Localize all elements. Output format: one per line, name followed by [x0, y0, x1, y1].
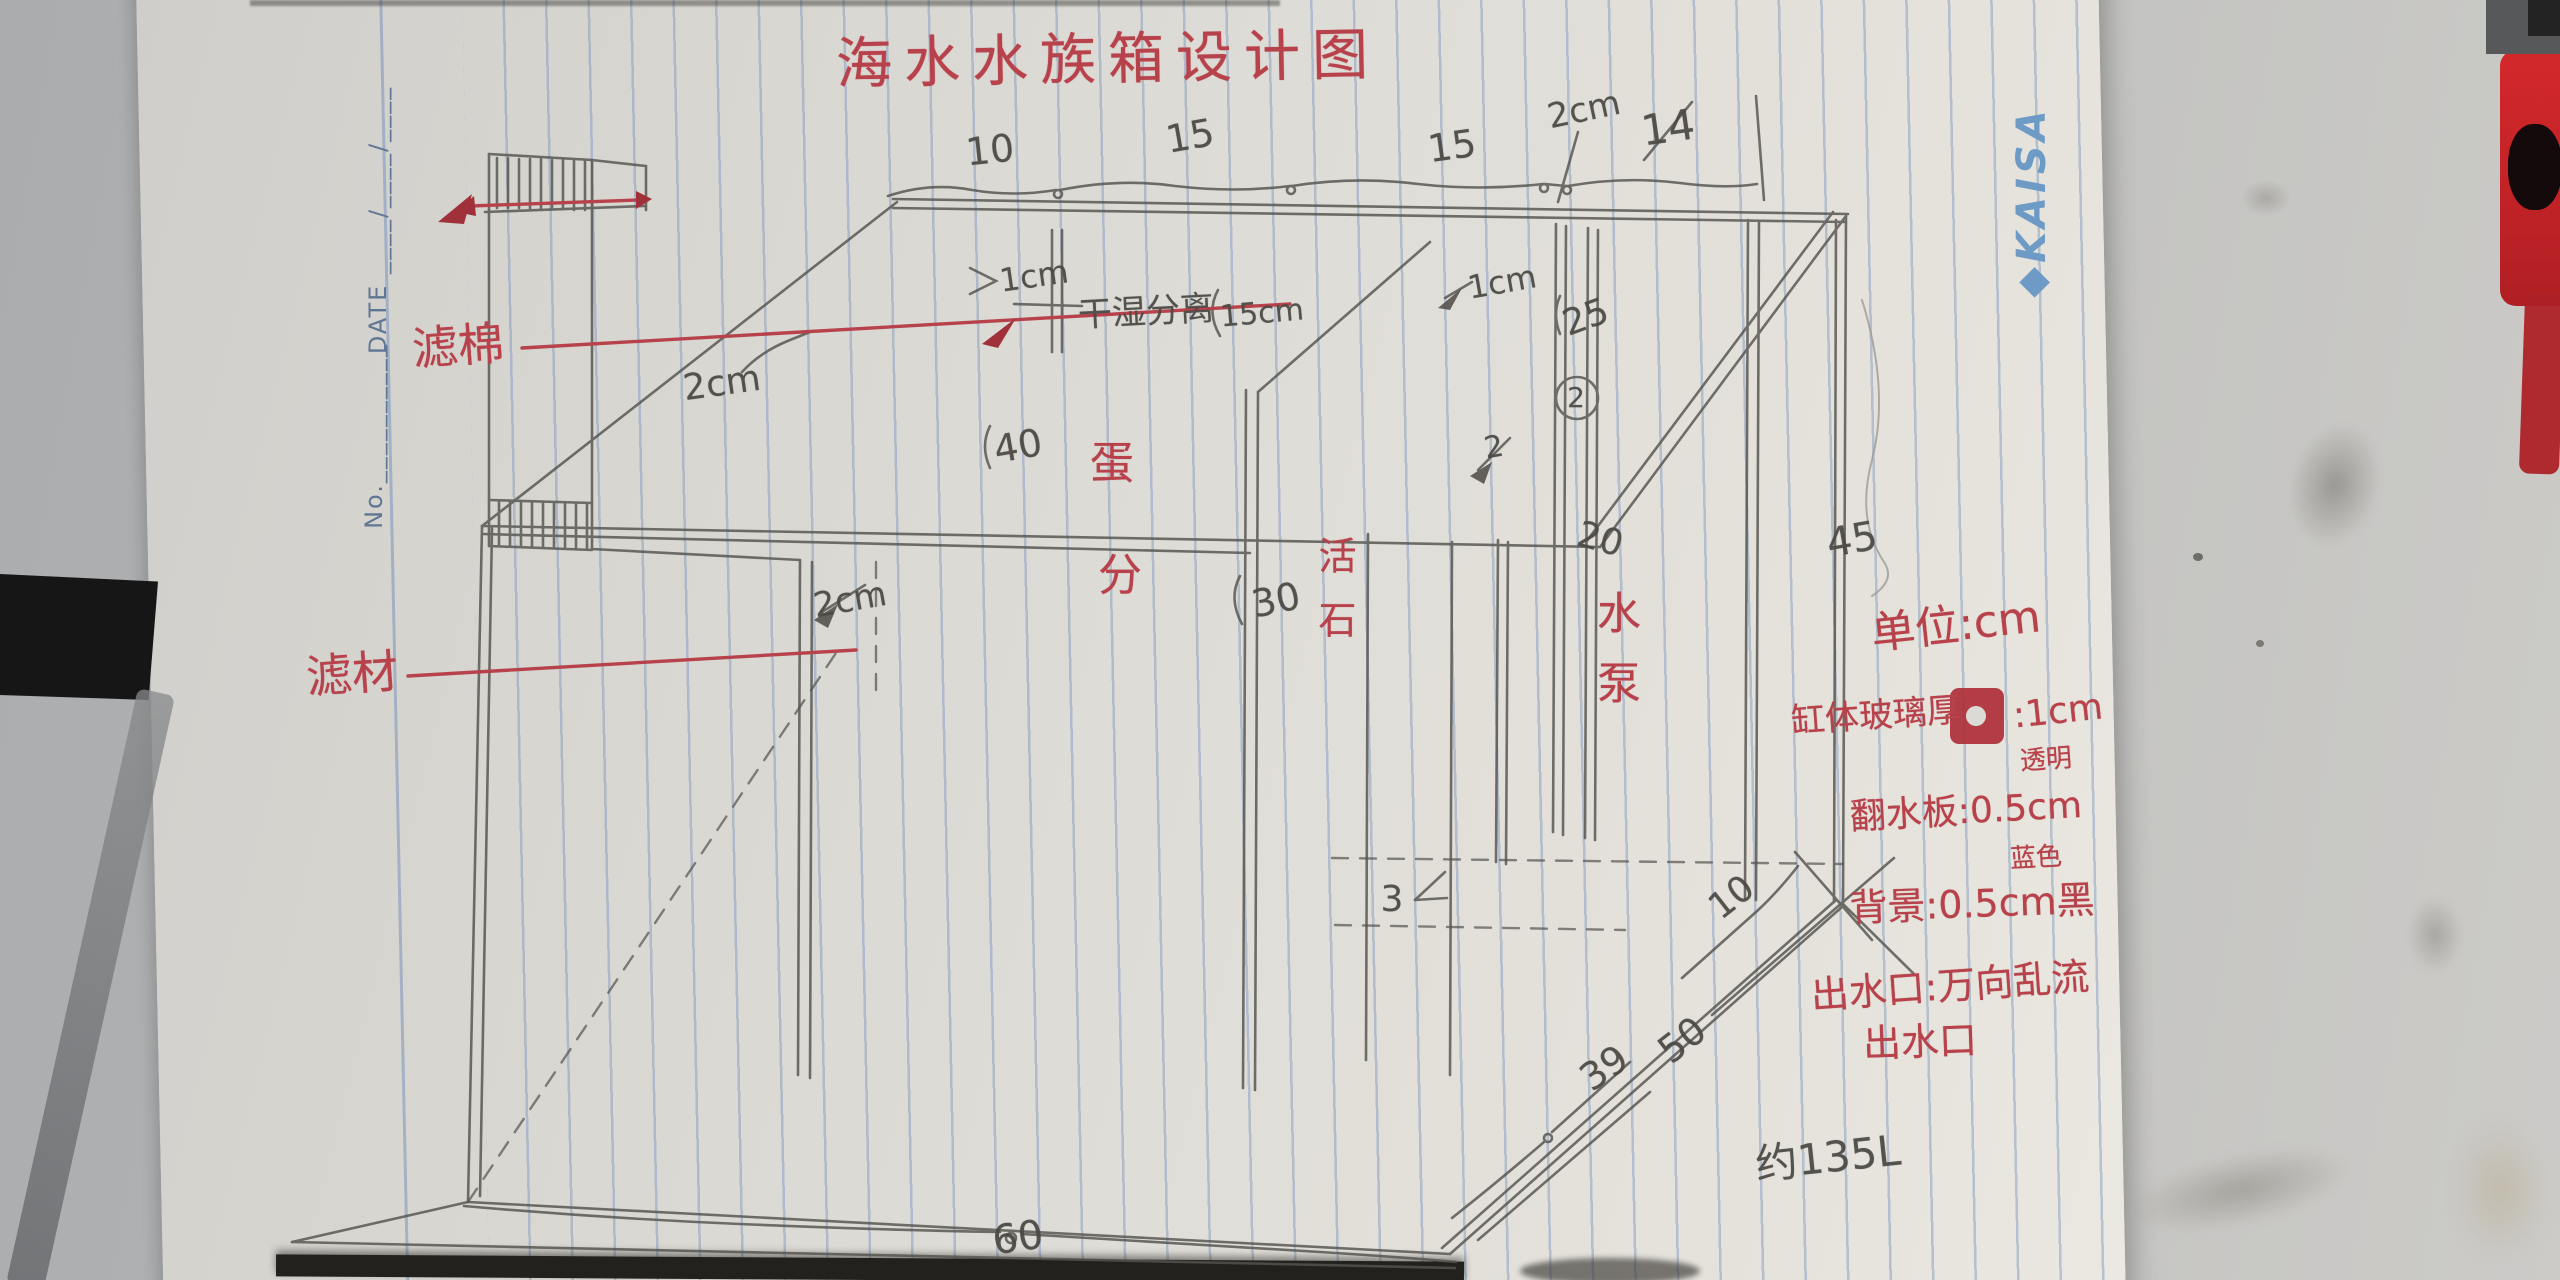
dim-top-15b: 15	[1425, 124, 1478, 168]
dim-10-bottom: 10	[1703, 870, 1761, 927]
label-skimmer-char1: 蛋	[1090, 442, 1134, 486]
dim-2cm-filter: 2cm	[681, 361, 763, 407]
label-skimmer-char2: 分	[1098, 554, 1142, 598]
dim-60: 60	[990, 1215, 1046, 1262]
dim-top-10: 10	[964, 129, 1016, 172]
dim-2cm-media: 2cm	[811, 577, 889, 623]
margin-date: DATE ____/____/____	[366, 86, 390, 354]
dim-3: 3	[1381, 882, 1404, 918]
dim-50: 50	[1651, 1010, 1713, 1070]
gap-1cm-right: 1cm	[1465, 260, 1539, 304]
annotation-layer: 1015152cm141cm干湿分离15cm1cm2522403020452cm…	[0, 0, 2560, 1280]
volume-note: 约135L	[1753, 1130, 1902, 1187]
note-glass-sub: 透明	[2019, 745, 2073, 775]
label-water-pump: 水泵	[1592, 590, 1636, 730]
note-outlet-line1: 出水口:万向乱流	[1810, 957, 2091, 1014]
dim-30: 30	[1248, 576, 1303, 623]
dim-45: 45	[1823, 516, 1880, 564]
label-filter-media: 滤材	[305, 648, 400, 700]
note-weir-sub: 蓝色	[2009, 844, 2062, 873]
note-glass-value: :1cm	[2011, 689, 2104, 734]
margin-no: No.__________	[362, 343, 386, 529]
note-outlet-line2: 出水口	[1862, 1021, 1977, 1063]
note-background: 背景:0.5cm黑	[1849, 881, 2095, 928]
label-live-rock: 活石	[1315, 536, 1353, 664]
dim-top-2cm: 2cm	[1545, 86, 1624, 135]
note-glass-thickness: 缸体玻璃厚	[1790, 693, 1962, 739]
dim-25: 25	[1558, 293, 1613, 342]
dim-top-15a: 15	[1163, 113, 1217, 159]
note-weir-plate: 翻水板:0.5cm	[1849, 788, 2083, 836]
gap-1cm-left: 1cm	[998, 255, 1071, 296]
label-filter-cotton: 滤棉	[411, 320, 506, 372]
label-dry-wet-separation: 干湿分离	[1077, 291, 1215, 332]
dim-40: 40	[991, 423, 1045, 469]
dim-20: 20	[1573, 517, 1627, 564]
dim-15cm: 15cm	[1219, 295, 1305, 332]
dim-top-14: 14	[1639, 103, 1698, 152]
note-unit: 单位:cm	[1869, 595, 2043, 657]
hole-number-2: 2	[1567, 384, 1585, 412]
dim-39: 39	[1573, 1039, 1634, 1098]
dim-2-arrow: 2	[1482, 432, 1506, 465]
photo-of-sketch: 海水水族箱设计图 ◆KAISA 1015152cm141cm干湿分离15cm1c…	[0, 0, 2560, 1280]
